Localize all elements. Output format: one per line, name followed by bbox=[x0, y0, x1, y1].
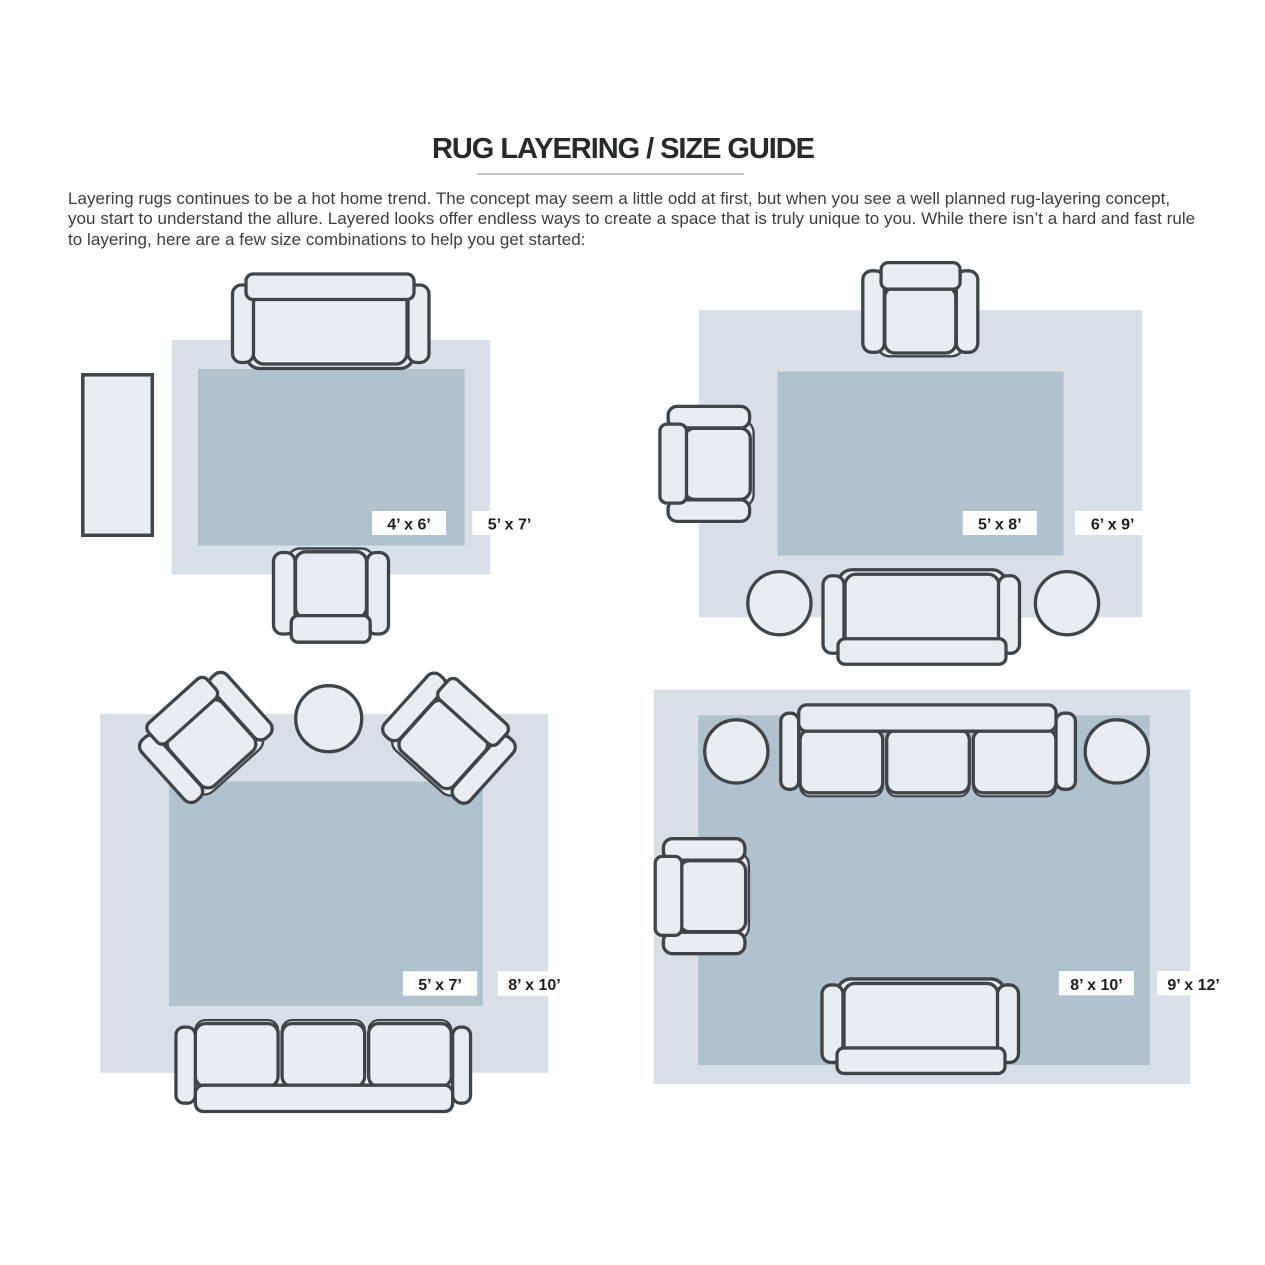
svg-text:8’ x 10’: 8’ x 10’ bbox=[1070, 977, 1123, 994]
svg-text:4’ x 6’: 4’ x 6’ bbox=[387, 517, 431, 534]
svg-text:8’ x 10’: 8’ x 10’ bbox=[508, 977, 561, 994]
svg-text:6’ x 9’: 6’ x 9’ bbox=[1091, 517, 1135, 534]
svg-text:5’ x 7’: 5’ x 7’ bbox=[488, 517, 532, 534]
svg-text:5’ x 7’: 5’ x 7’ bbox=[418, 977, 462, 994]
svg-text:9’ x 12’: 9’ x 12’ bbox=[1167, 977, 1220, 994]
svg-text:5’ x 8’: 5’ x 8’ bbox=[978, 517, 1022, 534]
